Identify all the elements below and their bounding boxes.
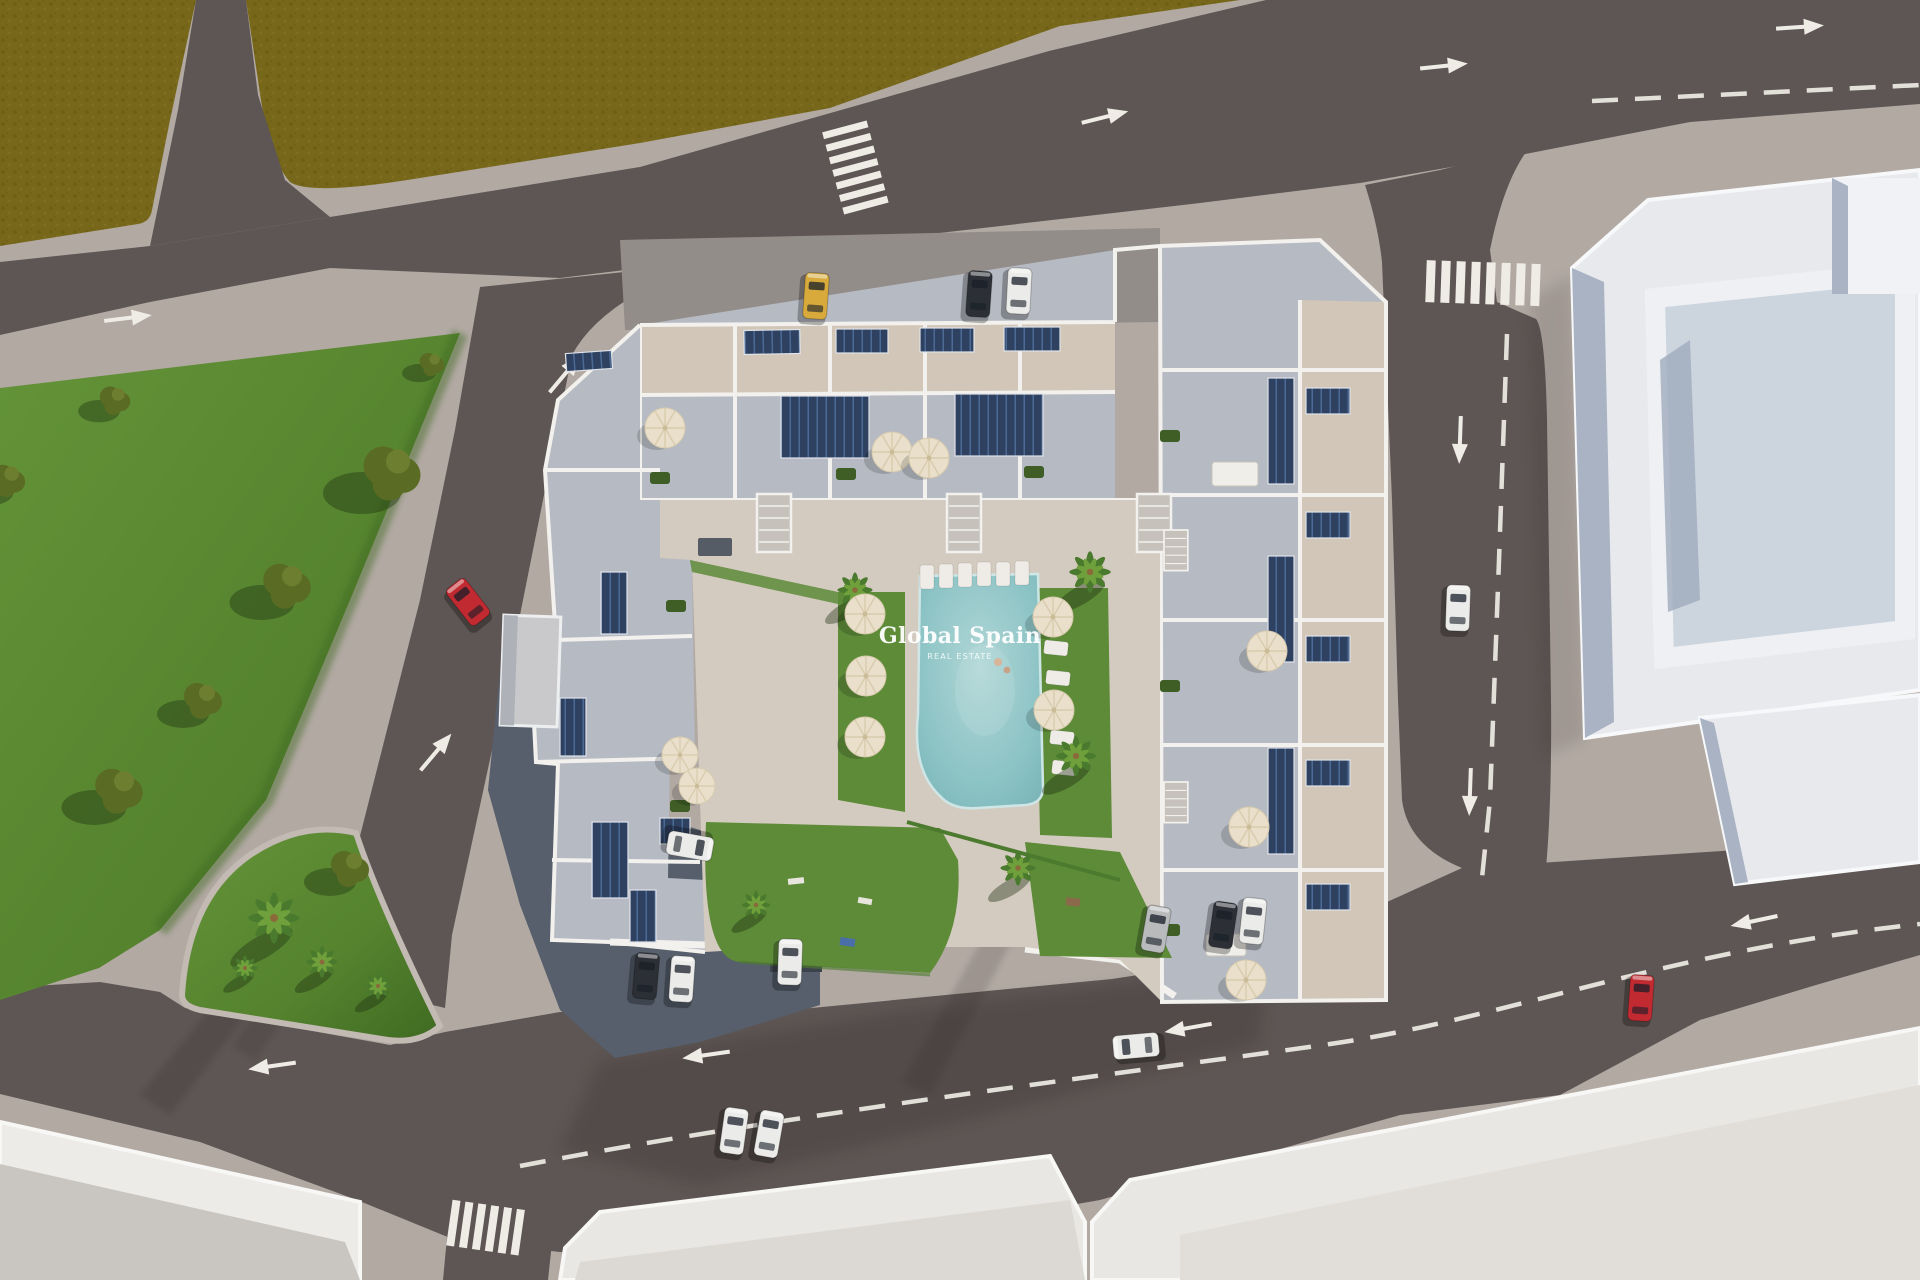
stairwell	[1164, 782, 1188, 823]
car	[663, 955, 696, 1009]
swimmer	[1004, 667, 1011, 674]
building-east	[1700, 695, 1920, 884]
car	[1001, 267, 1033, 320]
terrace-table	[698, 538, 732, 556]
car	[1112, 1032, 1166, 1065]
car	[797, 272, 830, 326]
courtyard	[660, 500, 1172, 1000]
stairwell	[757, 494, 791, 552]
car	[1622, 974, 1655, 1028]
car	[1233, 896, 1267, 951]
stairwell	[947, 494, 981, 552]
car	[1440, 584, 1471, 637]
car	[772, 938, 803, 991]
building-northeast	[1572, 170, 1920, 738]
car	[627, 952, 660, 1006]
stairwell	[1164, 530, 1188, 571]
utility-building	[500, 615, 561, 727]
render-canvas: Global Spain REAL ESTATE	[0, 0, 1920, 1280]
swimmer	[994, 658, 1002, 666]
terrace-table	[1212, 462, 1258, 486]
watermark-title: Global Spain	[879, 623, 1041, 649]
car	[960, 270, 993, 324]
watermark-subtitle: REAL ESTATE	[927, 652, 992, 661]
aerial-render: Global Spain REAL ESTATE	[0, 0, 1920, 1280]
